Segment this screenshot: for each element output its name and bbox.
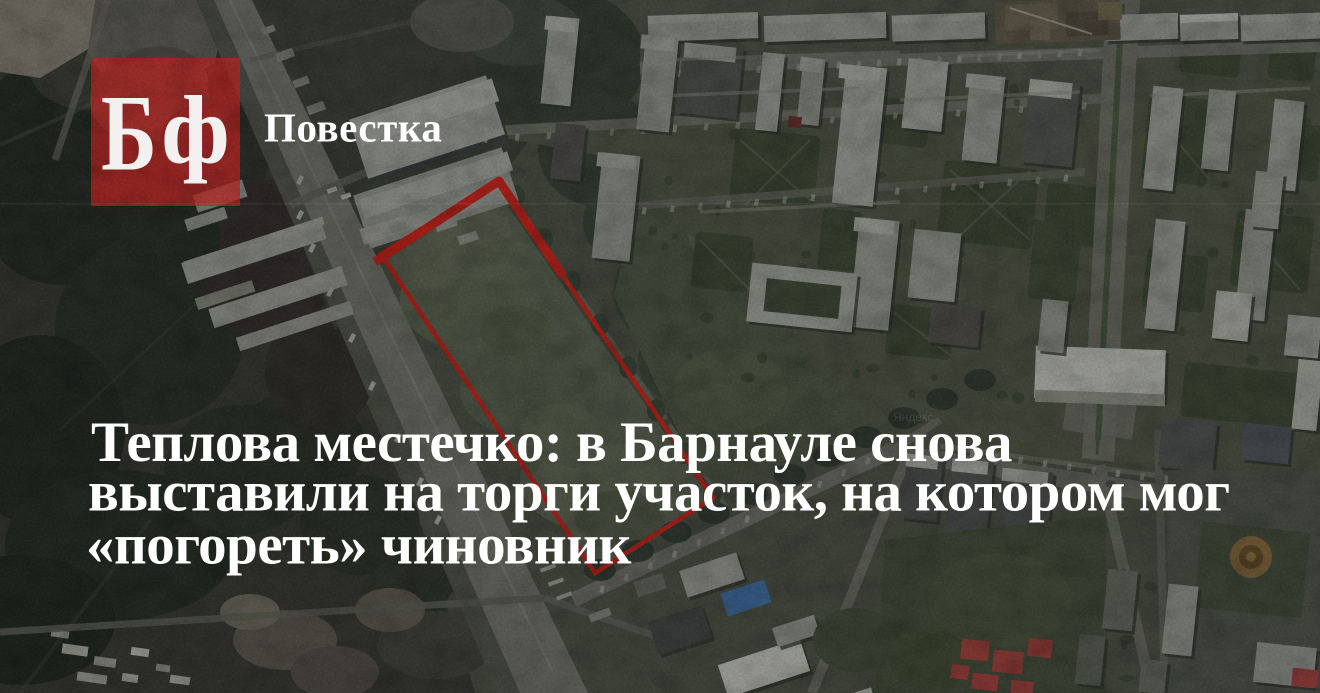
- svg-text:«погореть» чиновник: «погореть» чиновник: [86, 514, 632, 577]
- svg-text:Б: Б: [101, 73, 157, 194]
- svg-text:Повестка: Повестка: [264, 104, 442, 150]
- svg-text:ф: ф: [161, 76, 230, 184]
